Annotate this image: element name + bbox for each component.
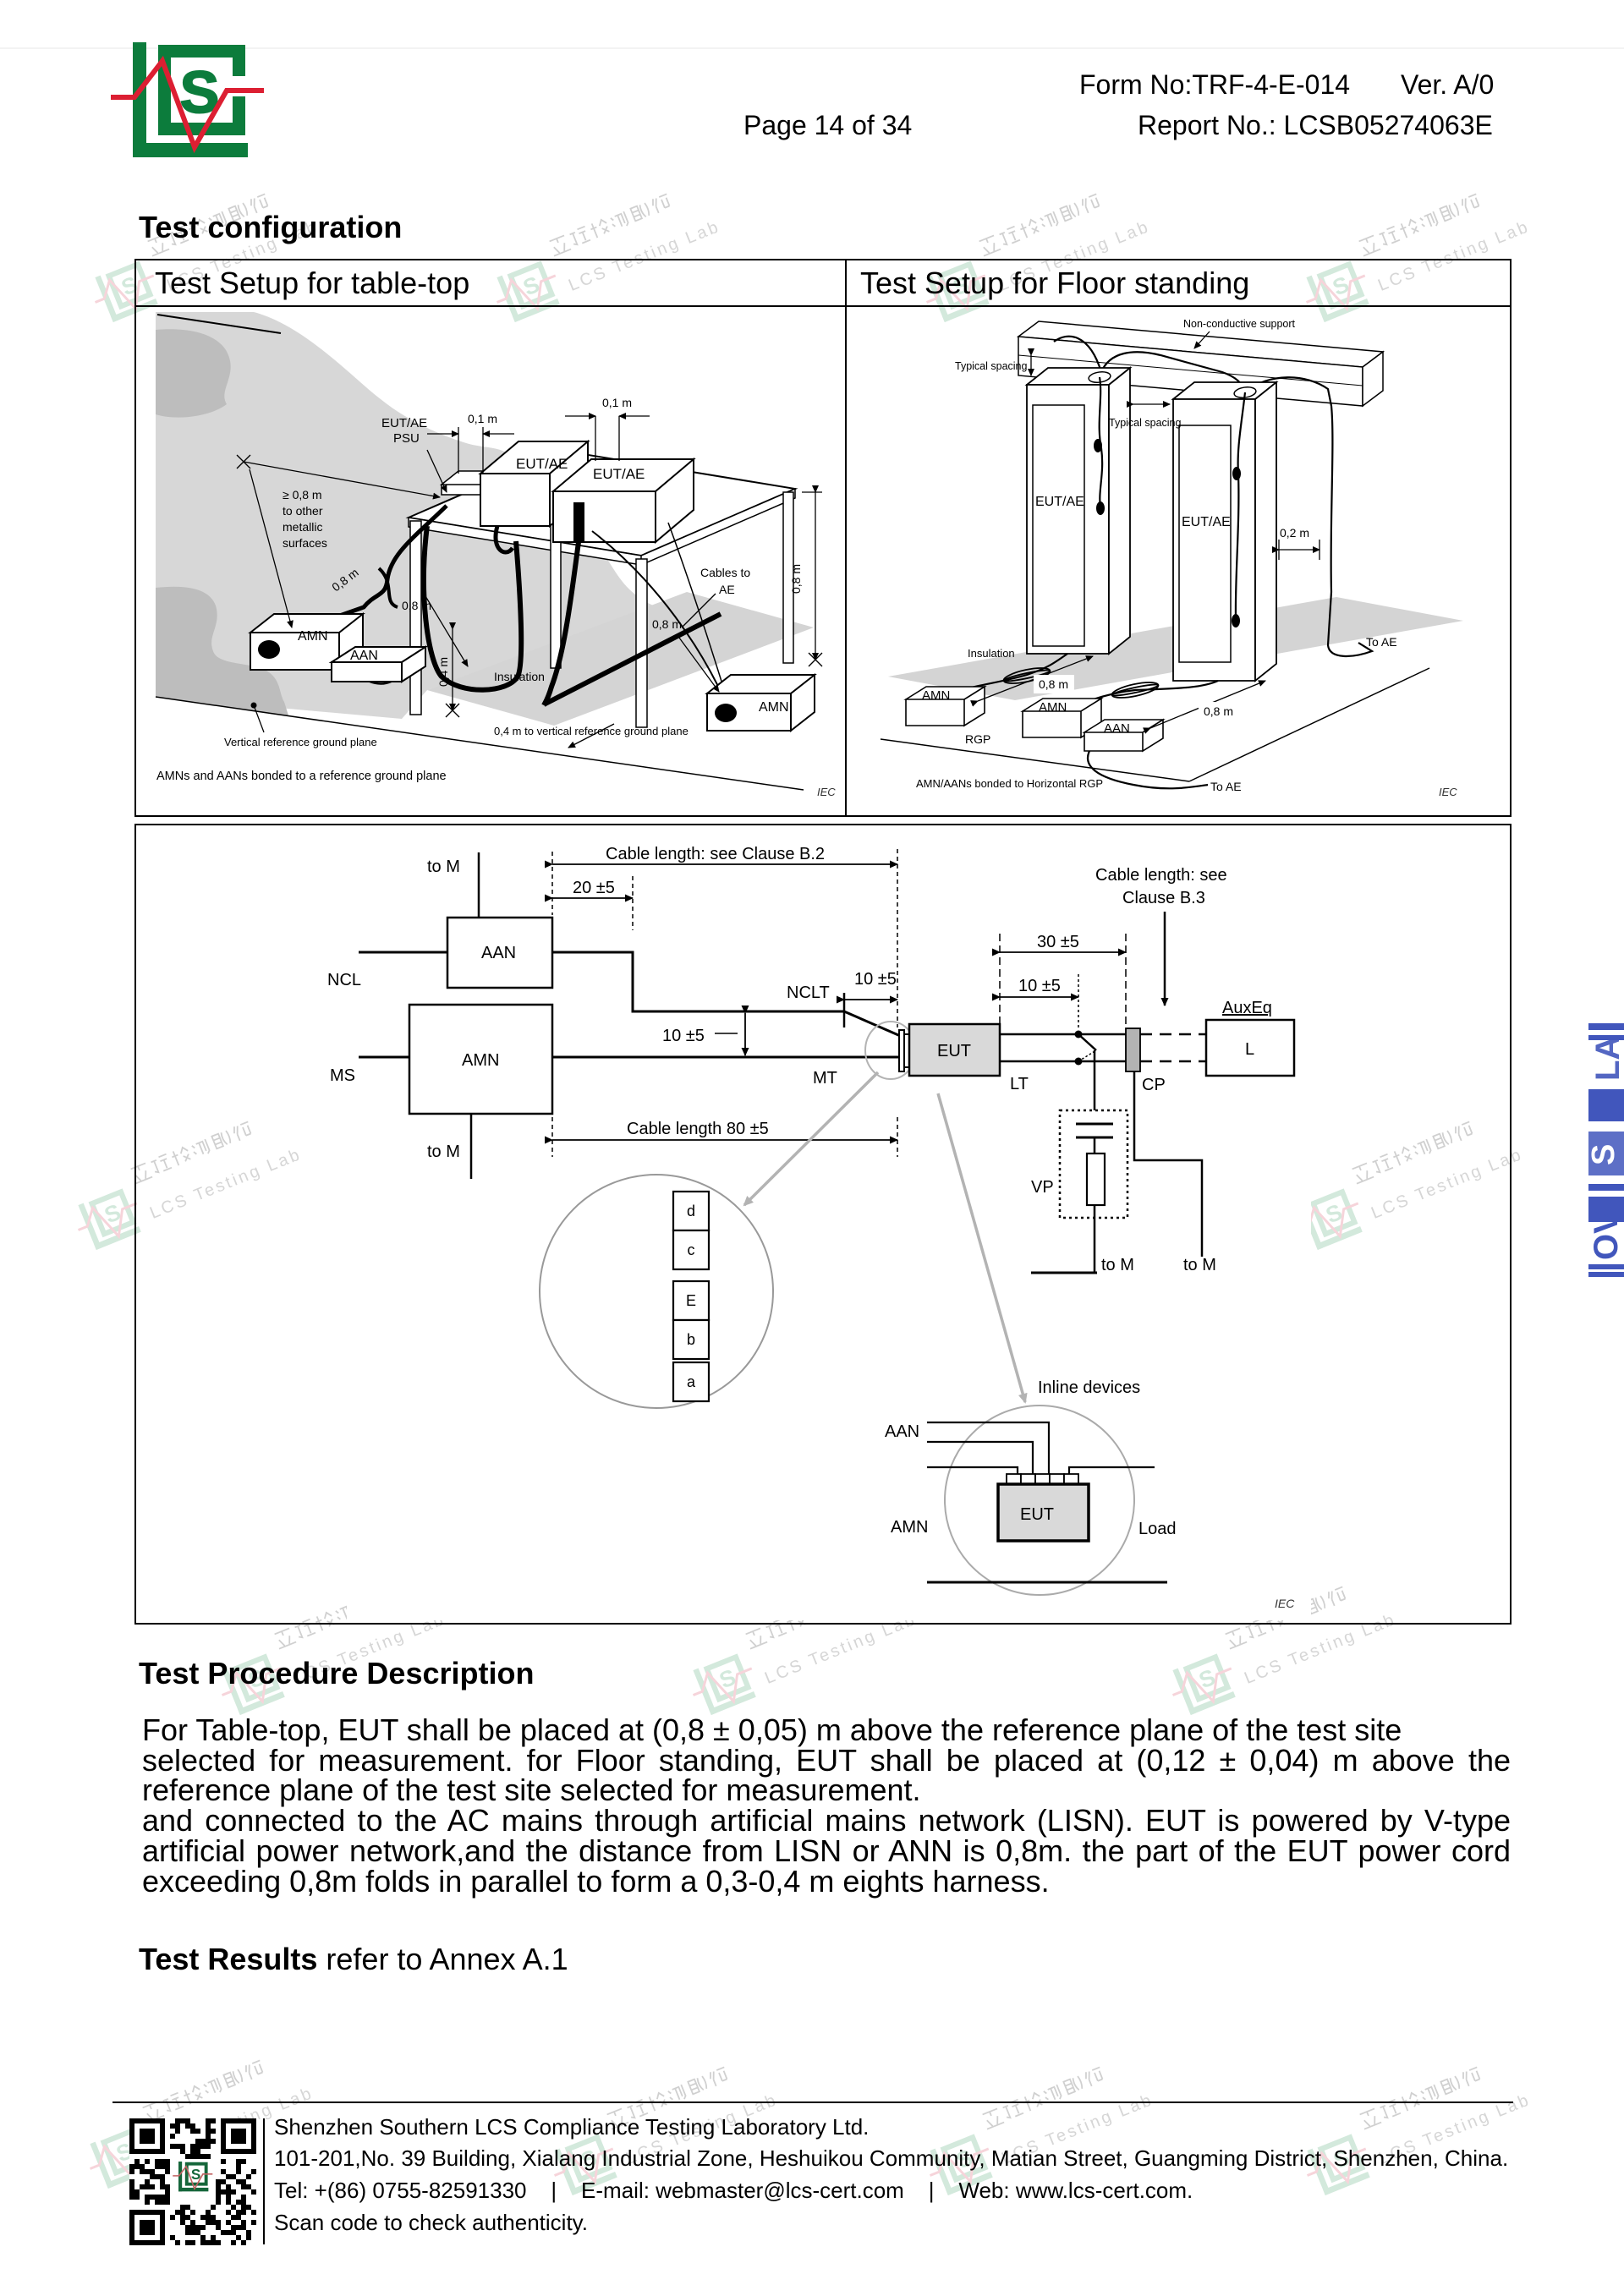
svg-text:AAN: AAN — [350, 649, 378, 663]
svg-text:to M: to M — [1183, 1256, 1216, 1274]
svg-text:AMN: AMN — [298, 629, 328, 644]
svg-text:EUT: EUT — [937, 1042, 971, 1060]
svg-text:b: b — [687, 1331, 695, 1348]
svg-text:to M: to M — [1101, 1256, 1134, 1274]
svg-text:AMN: AMN — [922, 688, 950, 703]
svg-text:To AE: To AE — [1366, 635, 1397, 649]
svg-text:0,2 m: 0,2 m — [1280, 526, 1309, 540]
svg-text:Cables to: Cables to — [700, 566, 750, 579]
svg-text:Cable length: see Clause B.2: Cable length: see Clause B.2 — [606, 845, 825, 863]
svg-text:0,8 m: 0,8 m — [1039, 677, 1068, 691]
svg-text:VP: VP — [1031, 1178, 1054, 1197]
svg-text:30 ±5: 30 ±5 — [1037, 933, 1079, 951]
svg-text:0,4 m to vertical reference gr: 0,4 m to vertical reference ground plane — [494, 725, 689, 737]
svg-text:metallic: metallic — [283, 520, 322, 534]
svg-text:to M: to M — [427, 1143, 460, 1161]
svg-text:0,4 m: 0,4 m — [436, 657, 450, 687]
svg-text:20 ±5: 20 ±5 — [573, 879, 615, 897]
svg-text:0,8 m: 0,8 m — [1204, 704, 1233, 718]
svg-text:Cable length 80 ±5: Cable length 80 ±5 — [627, 1120, 769, 1138]
svg-text:LT: LT — [1010, 1075, 1029, 1093]
svg-text:Non-conductive support: Non-conductive support — [1183, 318, 1296, 330]
svg-text:Inline devices: Inline devices — [1038, 1378, 1140, 1397]
svg-text:AMN: AMN — [891, 1518, 928, 1537]
svg-text:OV: OV — [1588, 1211, 1624, 1260]
svg-text:10 ±5: 10 ±5 — [1018, 977, 1061, 995]
svg-text:0,1 m: 0,1 m — [468, 412, 497, 425]
svg-text:To AE: To AE — [1210, 780, 1242, 793]
svg-text:Load: Load — [1138, 1520, 1177, 1538]
svg-text:Cable length: see: Cable length: see — [1095, 866, 1227, 885]
svg-text:a: a — [687, 1373, 696, 1390]
svg-text:≥ 0,8 m: ≥ 0,8 m — [283, 488, 322, 501]
svg-text:10 ±5: 10 ±5 — [662, 1027, 705, 1045]
svg-text:NCL: NCL — [327, 971, 361, 989]
svg-text:EUT: EUT — [1020, 1505, 1054, 1524]
svg-text:LA: LA — [1589, 1036, 1624, 1081]
svg-text:AAN: AAN — [885, 1422, 919, 1441]
svg-text:EUT/AE: EUT/AE — [593, 466, 645, 482]
svg-text:CP: CP — [1142, 1076, 1166, 1094]
svg-text:S: S — [1587, 1144, 1621, 1165]
svg-text:AAN: AAN — [481, 944, 516, 962]
svg-text:AMN: AMN — [759, 700, 789, 715]
svg-text:L: L — [1245, 1040, 1254, 1059]
svg-text:to other: to other — [283, 504, 323, 518]
svg-text:Clause B.3: Clause B.3 — [1122, 889, 1205, 907]
svg-text:Insulation: Insulation — [968, 647, 1015, 660]
svg-text:c: c — [688, 1241, 695, 1258]
svg-text:RGP: RGP — [965, 732, 990, 746]
svg-text:0,8 m: 0,8 m — [789, 564, 803, 594]
svg-text:to M: to M — [427, 858, 460, 876]
svg-text:Insulation: Insulation — [494, 670, 545, 683]
svg-text:Typical spacing: Typical spacing — [1109, 417, 1182, 429]
svg-text:EUT/AE: EUT/AE — [381, 416, 427, 430]
svg-text:AAN: AAN — [1104, 721, 1130, 736]
svg-text:IEC: IEC — [1275, 1597, 1295, 1610]
svg-text:surfaces: surfaces — [283, 536, 327, 550]
svg-text:d: d — [687, 1203, 695, 1219]
svg-text:IEC: IEC — [1439, 786, 1457, 798]
svg-text:EUT/AE: EUT/AE — [1035, 495, 1084, 509]
svg-text:Vertical reference ground plan: Vertical reference ground plane — [224, 736, 377, 748]
svg-text:AE: AE — [719, 583, 735, 596]
svg-text:PSU: PSU — [393, 431, 420, 446]
svg-text:0,8 m: 0,8 m — [652, 617, 682, 631]
svg-text:AuxEq: AuxEq — [1222, 999, 1272, 1017]
svg-text:10 ±5: 10 ±5 — [854, 970, 897, 989]
svg-text:E: E — [686, 1292, 696, 1309]
svg-text:Typical spacing: Typical spacing — [955, 360, 1028, 372]
svg-text:0,1 m: 0,1 m — [602, 396, 632, 409]
svg-text:IEC: IEC — [817, 786, 836, 798]
svg-text:NCLT: NCLT — [787, 984, 830, 1002]
svg-text:AMN: AMN — [1039, 700, 1067, 715]
svg-text:MS: MS — [330, 1066, 355, 1085]
svg-text:AMN: AMN — [462, 1051, 499, 1070]
svg-text:0,8 m: 0,8 m — [402, 599, 431, 612]
svg-text:AMN/AANs bonded to Horizontal: AMN/AANs bonded to Horizontal RGP — [916, 777, 1103, 790]
svg-text:AMNs and AANs bonded to a refe: AMNs and AANs bonded to a reference grou… — [156, 770, 447, 783]
svg-text:EUT/AE: EUT/AE — [516, 456, 568, 472]
svg-text:EUT/AE: EUT/AE — [1182, 515, 1231, 529]
svg-text:MT: MT — [813, 1069, 837, 1088]
